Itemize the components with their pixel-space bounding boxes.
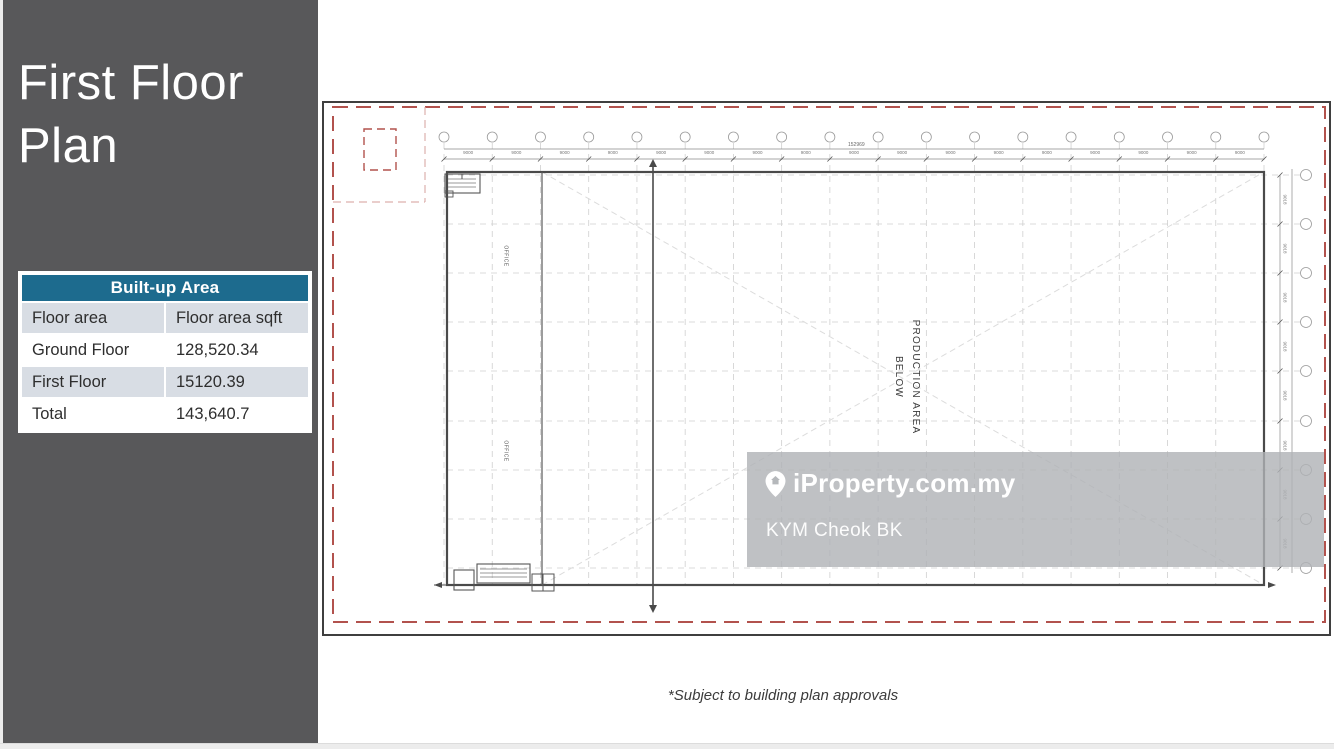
grid-bubble [1301, 317, 1312, 328]
cell-first-floor-value: 15120.39 [166, 367, 308, 397]
page-title-line2: Plan [18, 115, 244, 178]
cell-total-value: 143,640.7 [166, 399, 308, 429]
grid-bubble [777, 132, 787, 142]
top-dimension-label: 9000 [1177, 150, 1207, 155]
top-dimension-label: 9000 [936, 150, 966, 155]
top-dimension-label: 9000 [887, 150, 917, 155]
side-dimension-label: 9018 [1283, 238, 1288, 258]
map-pin-icon [764, 470, 787, 498]
page-title: First Floor Plan [18, 52, 244, 178]
top-dimension-label: 9000 [501, 150, 531, 155]
side-dimension-label: 9018 [1283, 189, 1288, 209]
production-area-label: PRODUCTION AREA BELOW [890, 320, 924, 435]
grid-bubble [1301, 170, 1312, 181]
grid-bubble [1066, 132, 1076, 142]
side-dimension-label: 9018 [1283, 386, 1288, 406]
grid-bubble [1018, 132, 1028, 142]
watermark-agent-name: KYM Cheok BK [766, 520, 903, 542]
top-dimension-label: 9000 [550, 150, 580, 155]
grid-bubble [728, 132, 738, 142]
top-dimension-label: 9000 [743, 150, 773, 155]
footnote: *Subject to building plan approvals [668, 687, 898, 704]
top-dimension-label: 9000 [791, 150, 821, 155]
grid-bubble [439, 132, 449, 142]
cell-ground-floor-value: 128,520.34 [166, 335, 308, 365]
table-row: Ground Floor 128,520.34 [22, 335, 308, 365]
top-dimension-label: 9000 [646, 150, 676, 155]
office-label: OFFICE [503, 245, 509, 266]
top-dimension-label: 9000 [1032, 150, 1062, 155]
grid-bubble [584, 132, 594, 142]
grid-bubble [1301, 268, 1312, 279]
top-dimension-label: 9000 [984, 150, 1014, 155]
grid-bubble [535, 132, 545, 142]
table-title: Built-up Area [22, 275, 308, 301]
table-row: First Floor 15120.39 [22, 367, 308, 397]
floor-plan: 9000900090009000900090009000900090009000… [322, 101, 1331, 636]
cell-floor-area-sqft-label: Floor area sqft [166, 303, 308, 333]
grid-bubble [680, 132, 690, 142]
grid-bubble [1301, 219, 1312, 230]
production-area-label-line2: BELOW [890, 320, 907, 435]
builtup-area-table: Built-up Area Floor area Floor area sqft… [18, 271, 312, 433]
watermark-brand-text: iProperty.com.my [793, 468, 1016, 499]
cell-ground-floor: Ground Floor [22, 335, 164, 365]
table-row: Floor area Floor area sqft [22, 303, 308, 333]
top-dimension-label: 9000 [1128, 150, 1158, 155]
grid-bubble [1301, 366, 1312, 377]
grid-bubble [1211, 132, 1221, 142]
table-row: Total 143,640.7 [22, 399, 308, 429]
office-label: OFFICE [503, 440, 509, 461]
slide-edge-bottom [0, 743, 1334, 749]
top-dimension-label: 9000 [598, 150, 628, 155]
production-area-label-line1: PRODUCTION AREA [907, 320, 924, 435]
cell-first-floor: First Floor [22, 367, 164, 397]
grid-bubble [1114, 132, 1124, 142]
grid-bubble [1163, 132, 1173, 142]
top-dimension-label: 9000 [694, 150, 724, 155]
grid-bubble [1301, 416, 1312, 427]
side-dimension-label: 9018 [1283, 287, 1288, 307]
left-panel: First Floor Plan Built-up Area Floor are… [3, 0, 318, 743]
grid-bubble [487, 132, 497, 142]
grid-bubble [970, 132, 980, 142]
grid-bubble [873, 132, 883, 142]
grid-bubble [1259, 132, 1269, 142]
grid-bubble [921, 132, 931, 142]
grid-bubble [632, 132, 642, 142]
side-dimension-label: 9018 [1283, 336, 1288, 356]
top-dimension-label: 9000 [1225, 150, 1255, 155]
cell-total: Total [22, 399, 164, 429]
top-dimension-total-label: 152969 [848, 142, 865, 148]
watermark-brand-row: iProperty.com.my [764, 468, 1016, 499]
table-header-row: Built-up Area [22, 275, 308, 301]
grid-bubble [825, 132, 835, 142]
cell-floor-area-label: Floor area [22, 303, 164, 333]
watermark: iProperty.com.my KYM Cheok BK [747, 452, 1324, 567]
top-dimension-label: 9000 [839, 150, 869, 155]
top-dimension-label: 9000 [453, 150, 483, 155]
page-title-line1: First Floor [18, 52, 244, 115]
top-dimension-label: 9000 [1080, 150, 1110, 155]
